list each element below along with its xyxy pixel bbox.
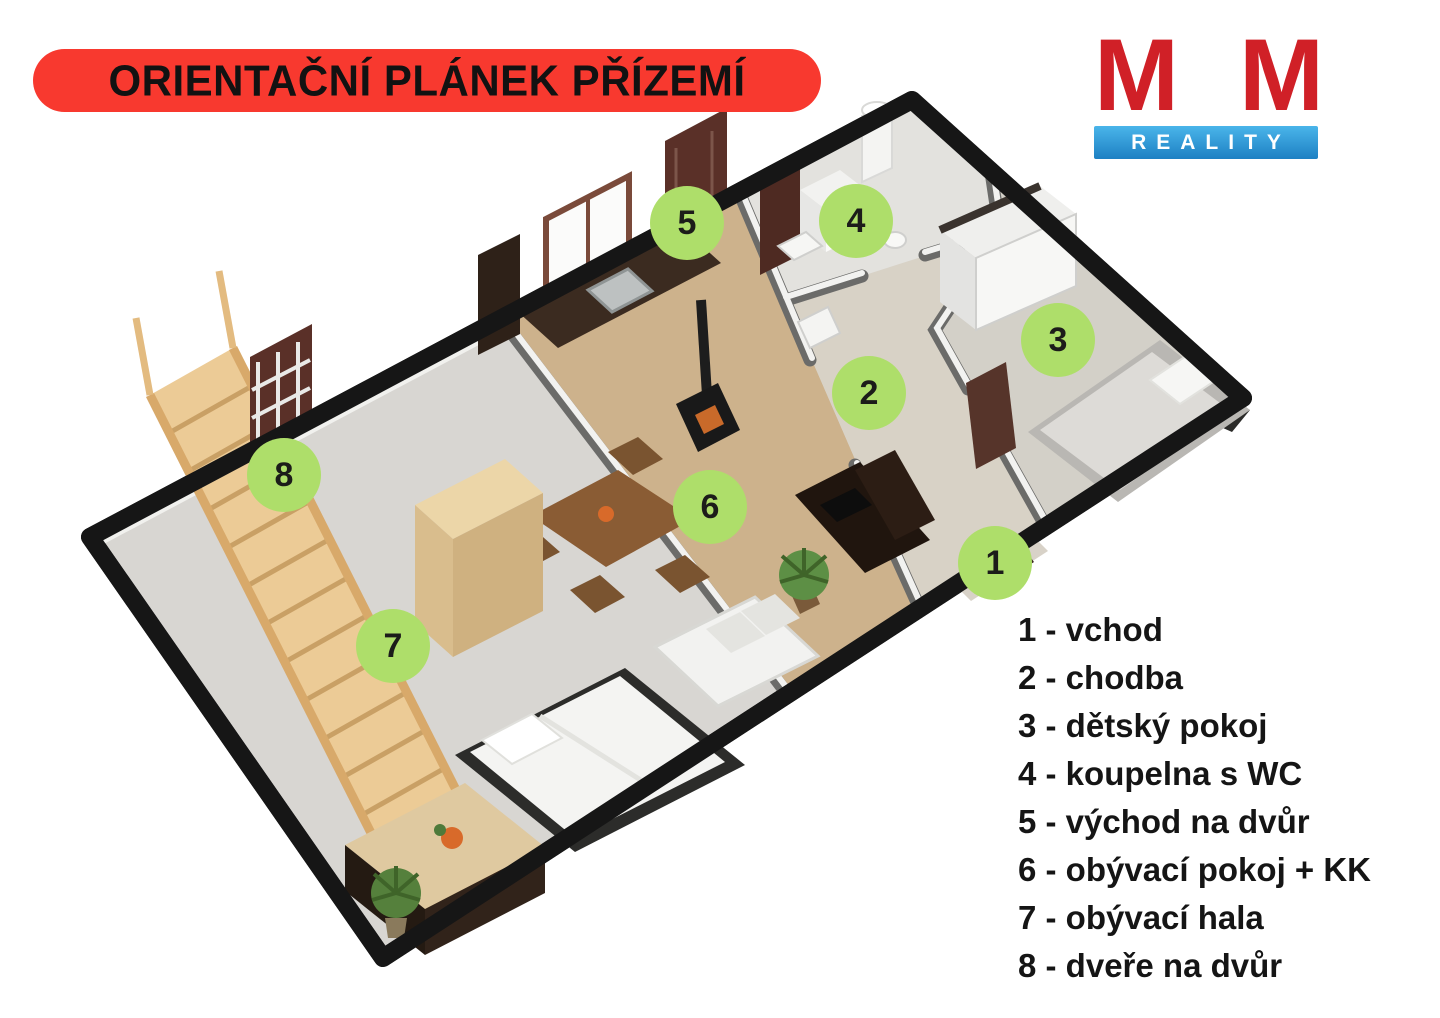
legend-item-8: 8 - dveře na dvůr <box>1018 942 1438 990</box>
page-title: ORIENTAČNÍ PLÁNEK PŘÍZEMÍ <box>108 56 745 106</box>
legend-item-7: 7 - obývací hala <box>1018 894 1438 942</box>
legend-item-6: 6 - obývací pokoj + KK <box>1018 846 1438 894</box>
title-banner: ORIENTAČNÍ PLÁNEK PŘÍZEMÍ <box>33 49 821 112</box>
legend: 1 - vchod2 - chodba3 - dětský pokoj4 - k… <box>1018 606 1438 990</box>
legend-item-2: 2 - chodba <box>1018 654 1438 702</box>
wood-stove <box>676 300 740 452</box>
plan-marker-5: 5 <box>650 186 724 260</box>
bed-hall <box>455 668 745 852</box>
child-room-door <box>966 362 1016 469</box>
wardrobe-beige <box>415 459 543 657</box>
plan-marker-3: 3 <box>1021 303 1095 377</box>
legend-item-3: 3 - dětský pokoj <box>1018 702 1438 750</box>
palm-plant-living <box>779 548 829 614</box>
logo-m-left: M <box>1094 36 1173 114</box>
staircase <box>136 271 503 930</box>
logo-m-right: M <box>1239 36 1318 114</box>
hall-back-door <box>760 165 800 275</box>
sofa <box>655 594 818 706</box>
floor-living-room <box>501 192 920 695</box>
plan-marker-8: 8 <box>247 438 321 512</box>
logo-reality-text: REALITY <box>1121 131 1291 155</box>
plan-marker-1: 1 <box>958 526 1032 600</box>
mm-reality-logo: M & M REALITY <box>1094 36 1318 159</box>
plan-marker-2: 2 <box>832 356 906 430</box>
sideboard-flowers <box>345 783 545 955</box>
plan-marker-7: 7 <box>356 609 430 683</box>
legend-item-4: 4 - koupelna s WC <box>1018 750 1438 798</box>
yard-door-8 <box>250 324 312 452</box>
plan-marker-6: 6 <box>673 470 747 544</box>
child-room-furniture <box>940 186 1250 502</box>
legend-item-1: 1 - vchod <box>1018 606 1438 654</box>
tv-cabinet <box>795 462 930 573</box>
legend-item-5: 5 - východ na dvůr <box>1018 798 1438 846</box>
logo-ampersand: & <box>1171 30 1240 122</box>
page: ORIENTAČNÍ PLÁNEK PŘÍZEMÍ M & M REALITY … <box>0 0 1440 1018</box>
palm-plant-hall <box>371 866 421 938</box>
logo-mm-row: M & M <box>1094 36 1318 120</box>
kitchen-window <box>546 176 629 294</box>
plan-marker-4: 4 <box>819 184 893 258</box>
interior-walls <box>501 170 1048 695</box>
